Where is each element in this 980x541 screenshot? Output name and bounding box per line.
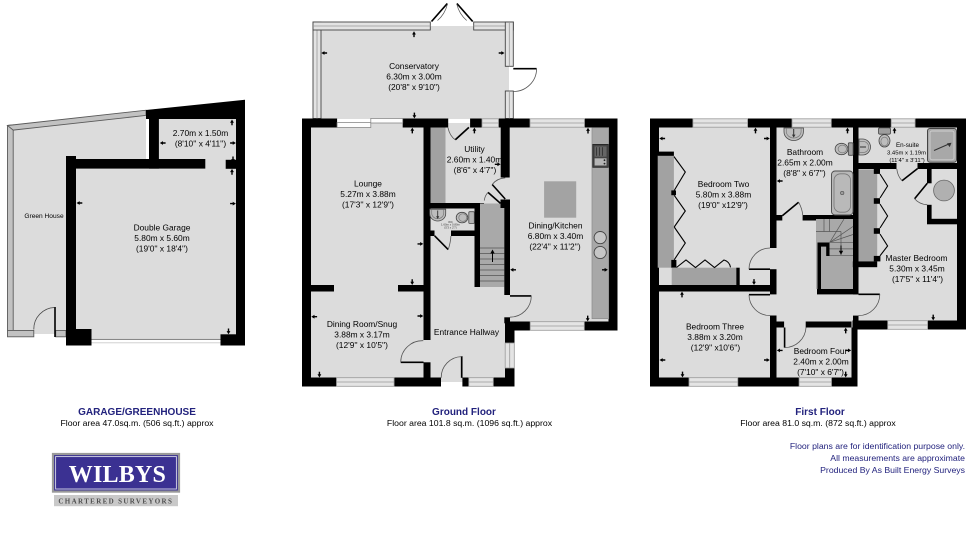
svg-text:(7'10" x 6'7"): (7'10" x 6'7") (797, 367, 844, 377)
svg-text:3.88m x 3.17m: 3.88m x 3.17m (334, 329, 389, 339)
svg-text:6.80m x 3.40m: 6.80m x 3.40m (528, 231, 583, 241)
svg-text:Bedroom Two: Bedroom Two (698, 179, 750, 189)
svg-text:CHARTERED SURVEYORS: CHARTERED SURVEYORS (58, 498, 173, 506)
svg-text:5.30m x 3.45m: 5.30m x 3.45m (889, 263, 944, 273)
svg-text:(8'8" x 6'7''): (8'8" x 6'7'') (783, 168, 826, 178)
svg-text:Conservatory: Conservatory (389, 61, 440, 71)
svg-text:5.80m x 3.88m: 5.80m x 3.88m (696, 189, 751, 199)
svg-text:Dining Room/Snug: Dining Room/Snug (327, 319, 398, 329)
svg-text:2.60m x 1.40m: 2.60m x 1.40m (447, 154, 502, 164)
svg-text:WILBYS: WILBYS (69, 462, 166, 488)
svg-text:(20'8" x 9'10"): (20'8" x 9'10") (388, 82, 440, 92)
svg-text:(5'3 x 2'7): (5'3 x 2'7) (444, 226, 457, 230)
svg-text:Double Garage: Double Garage (134, 222, 191, 232)
svg-text:(17'3'' x 12'9''): (17'3'' x 12'9'') (342, 200, 394, 210)
svg-text:(17'5" x 11'4''): (17'5" x 11'4'') (892, 274, 943, 284)
svg-text:Dining/Kitchen: Dining/Kitchen (528, 220, 582, 230)
svg-text:Bathroom: Bathroom (787, 147, 823, 157)
svg-text:GARAGE/GREENHOUSE: GARAGE/GREENHOUSE (78, 407, 196, 418)
svg-text:(19'0'' x12'9''): (19'0'' x12'9'') (698, 200, 748, 210)
svg-text:Bedroom Four: Bedroom Four (794, 346, 848, 356)
svg-text:Floor area 47.0sq.m. (506 sq.f: Floor area 47.0sq.m. (506 sq.ft.) approx (60, 418, 214, 428)
svg-text:Lounge: Lounge (354, 178, 382, 188)
svg-text:Bedroom Three: Bedroom Three (686, 321, 744, 331)
svg-text:(12'9'' x 10'5''): (12'9'' x 10'5'') (336, 340, 388, 350)
svg-text:6.30m x 3.00m: 6.30m x 3.00m (386, 71, 441, 81)
svg-text:First Floor: First Floor (795, 407, 845, 418)
svg-text:(12'9" x10'6''): (12'9" x10'6'') (691, 343, 741, 353)
svg-text:Produced By As Built Energy Su: Produced By As Built Energy Surveys (820, 465, 966, 475)
svg-text:5.80m x 5.60m: 5.80m x 5.60m (134, 233, 189, 243)
svg-text:(19'0'' x 18'4''): (19'0'' x 18'4'') (136, 244, 188, 254)
svg-text:2.70m x 1.50m: 2.70m x 1.50m (173, 128, 228, 138)
svg-text:(11'4" x 3'11"): (11'4" x 3'11") (889, 158, 924, 164)
svg-text:(22'4'' x 11'2''): (22'4'' x 11'2'') (529, 242, 581, 252)
svg-text:Floor area 101.8 sq.m. (1096 s: Floor area 101.8 sq.m. (1096 sq.ft.) app… (387, 418, 553, 428)
svg-text:Green House: Green House (24, 213, 64, 220)
svg-text:2.65m x 2.00m: 2.65m x 2.00m (777, 157, 832, 167)
svg-text:(8'10'' x 4'11''): (8'10'' x 4'11'') (175, 139, 227, 149)
svg-text:Master Bedroom: Master Bedroom (886, 253, 948, 263)
svg-text:5.27m x 3.88m: 5.27m x 3.88m (340, 189, 395, 199)
svg-text:Floor plans are for identifica: Floor plans are for identification purpo… (790, 441, 965, 451)
svg-text:3.45m x 1.19m: 3.45m x 1.19m (887, 151, 926, 157)
svg-text:En-suite: En-suite (896, 142, 920, 149)
svg-text:Floor area 81.0 sq.m. (872 sq.: Floor area 81.0 sq.m. (872 sq.ft.) appro… (740, 418, 896, 428)
svg-text:Entrance Hallway: Entrance Hallway (434, 327, 500, 337)
svg-text:Ground Floor: Ground Floor (432, 407, 496, 418)
svg-text:3.88m x 3.20m: 3.88m x 3.20m (687, 332, 742, 342)
svg-text:(8'6'' x 4'7''): (8'6'' x 4'7'') (454, 165, 497, 175)
svg-text:All measurements are approxima: All measurements are approximate (830, 453, 965, 463)
svg-text:Utility: Utility (464, 144, 485, 154)
svg-text:2.40m x 2.00m: 2.40m x 2.00m (793, 356, 848, 366)
